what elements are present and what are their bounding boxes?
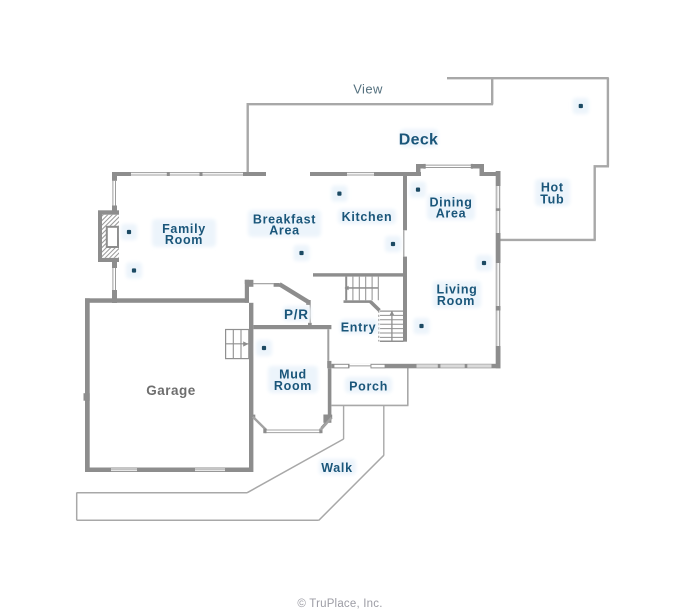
- svg-text:Walk: Walk: [321, 461, 353, 475]
- svg-text:View: View: [353, 82, 383, 97]
- svg-text:Deck: Deck: [399, 132, 438, 149]
- svg-text:Entry: Entry: [341, 321, 376, 335]
- svg-text:Room: Room: [165, 233, 203, 247]
- svg-text:© TruPlace, Inc.: © TruPlace, Inc.: [297, 598, 382, 610]
- svg-text:Room: Room: [274, 379, 312, 393]
- svg-text:Area: Area: [269, 223, 300, 237]
- svg-text:Kitchen: Kitchen: [342, 210, 393, 224]
- svg-text:Garage: Garage: [146, 383, 196, 398]
- svg-text:Tub: Tub: [540, 192, 564, 206]
- svg-text:Room: Room: [437, 294, 475, 308]
- svg-text:Porch: Porch: [349, 379, 388, 393]
- svg-text:P/R: P/R: [284, 307, 309, 322]
- svg-text:Area: Area: [436, 207, 467, 221]
